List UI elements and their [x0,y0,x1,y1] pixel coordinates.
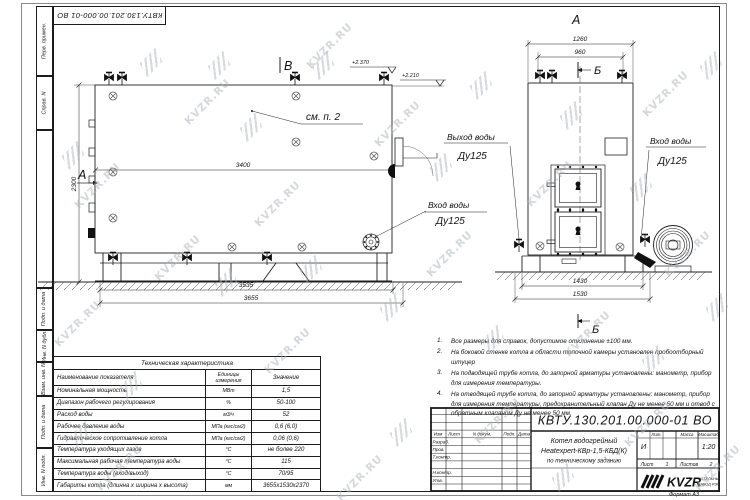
inlet-dn-label: Ду125 [435,216,465,227]
boiler-body-side [95,85,392,253]
valve-icon [105,73,114,86]
lower-door [547,209,601,255]
spec-cell: 0,6 (6,0) [252,421,321,433]
kvzr-logo-text: KVZR [667,476,701,490]
title-block: КВТУ.130.201.00.000-01 ВО Изм Лист N док… [430,407,720,492]
outlet-label: Выход воды [447,132,496,142]
spec-row: Максимальная рабочая температура воды °С… [54,456,321,468]
product-name-line2: Heatexpert-КВр-1,5-КБД(К) [541,448,627,455]
spec-cell: % [206,397,252,409]
col-izm: Изм [434,432,443,437]
col-list: Лист [447,432,460,437]
lit-value: И [641,442,647,451]
inlet-label: Вход воды [428,200,470,210]
spec-cell: 52 [252,409,321,421]
format-label: Формат А3 [648,492,720,498]
row-razrab: Разраб. [433,439,450,444]
sheets-value: 2 [709,462,713,468]
spec-cell: 0,06 (0,6) [252,433,321,445]
dim-2300: 2300 [71,176,78,192]
inlet-dn-label-front: Ду125 [657,156,687,167]
spec-cell: Гидравлическое сопротивление котла [54,433,206,445]
spec-cell: Рабочее давление воды [54,421,206,433]
spec-cell: 1,5 [252,386,321,398]
spec-row: Диапазон рабочего регулирования % 50-100 [54,397,321,409]
spec-cell: МВт [206,386,252,398]
spec-row: Температура уходящих газов °С не более 2… [54,444,321,456]
spec-cell: Диапазон рабочего регулирования [54,397,206,409]
product-name-line1: Котел водогрейный [551,437,618,445]
spec-cell: 3655х1530х2370 [252,480,321,492]
note-item: 2. На боковой стенке котла в области топ… [437,348,720,367]
lug-icon [298,243,306,251]
valve-icon [291,73,300,86]
col-ndocum: N докум. [473,432,492,437]
dim-1260: 1260 [573,36,588,43]
lug-icon [109,92,117,100]
spec-header-units: Единицы измерения [206,370,252,386]
elevation-2370: +2.370 [352,60,370,66]
spec-cell: Расход воды [54,409,206,421]
valve-icon [618,71,627,84]
dim-960: 960 [575,49,586,56]
note-item: 3. На подводящей трубе котла, до запорно… [437,369,720,388]
section-marker-b-bottom: Б [592,324,599,336]
lug-icon [616,243,624,251]
spec-cell: 70/95 [252,468,321,480]
dim-1530: 1530 [573,291,588,298]
spec-cell: 115 [252,456,321,468]
elevation-2210: +2.210 [402,73,420,79]
spec-cell: Температура воды (вход/выход) [54,468,206,480]
spec-cell: Номинальная мощность [54,386,206,398]
lug-icon [292,138,300,146]
lug-icon [228,243,236,251]
lug-icon [109,168,117,176]
section-marker-a: А [77,168,86,182]
section-marker-b-top: Б [594,65,601,77]
spec-row: Гидравлическое сопротивление котла МПа (… [54,433,321,445]
spec-cell: МПа (кгс/см2) [206,421,252,433]
spec-cell: не более 220 [252,444,321,456]
lug-icon [109,214,117,222]
note-item: 1. Все размеры для справок, допустимое о… [437,337,720,346]
product-name-line3: по техническому заданию [547,459,622,465]
sheet-value: 1 [666,462,669,468]
col-data: Дата [517,432,531,437]
spec-cell: мм [206,480,252,492]
sheet-label: Лист [640,462,654,468]
spec-cell: 50-100 [252,397,321,409]
valve-icon [515,240,524,253]
lug-icon [536,242,544,250]
spec-cell: °С [206,456,252,468]
view-title-a: А [571,13,580,27]
section-marker-v: В [284,59,292,73]
spec-row: Габариты котла (длинна х ширина х высота… [54,480,321,492]
outlet-dn-label: Ду125 [457,151,487,162]
valve-icon [118,73,127,86]
spec-cell: МПа (кгс/см2) [206,433,252,445]
inlet-label-front: Вход воды [650,136,692,146]
valve-icon [548,71,557,84]
inlet-flange [363,234,379,250]
row-tkontr: Т.контр. [433,455,452,460]
spec-cell: Температура уходящих газов [54,444,206,456]
spec-title-row: Техническая характеристика [54,357,321,370]
scale-value: 1:20 [702,444,716,451]
front-view-labels: А 1260 960 Б Выход воды Ду125 Вход воды … [447,13,692,336]
spec-row: Расход воды м3/ч 52 [54,409,321,421]
spec-row: Рабочее давление воды МПа (кгс/см2) 0,6 … [54,421,321,433]
dim-3400: 3400 [236,162,251,169]
lug-icon [370,152,378,160]
spec-table-title: Техническая характеристика [54,357,321,370]
spec-header-value: Значение [252,370,321,386]
dim-3535: 3535 [239,282,254,289]
upper-door [547,166,601,211]
dim-1430: 1430 [573,278,588,285]
spec-header-name: Наименование показателя [54,370,206,386]
row-prov: Пров. [433,447,445,452]
side-view [38,57,487,307]
valve-icon [641,235,650,248]
spec-header-row: Наименование показателя Единицы измерени… [54,370,321,386]
logo-sub-line1: КОТЕЛЬНЫЙ [698,477,720,481]
logo-sub-line2: ЗАВОД РЭП [698,483,720,487]
row-utv: Утв. [433,478,443,483]
spec-cell: Максимальная рабочая температура воды [54,456,206,468]
valve-icon [536,71,545,84]
lug-icon [292,92,300,100]
col-podp: Подп. [503,432,515,437]
spec-cell: Габариты котла (длинна х ширина х высота… [54,480,206,492]
sheets-label: Листов [679,462,699,468]
mass-header: Масса [681,432,695,437]
valve-icon [380,73,389,86]
row-nkontr: Н.контр. [433,470,452,475]
drawing-sheet: КВТУ.130.201.00.000-01 ВО Перв. примен. … [0,0,750,500]
spec-row: Номинальная мощность МВт 1,5 [54,386,321,398]
blower-fan [654,226,693,273]
title-block-doc-number: КВТУ.130.201.00.000-01 ВО [538,414,712,428]
spec-cell: °С [206,444,252,456]
spec-table: Техническая характеристика Наименование … [53,356,321,492]
lit-header: Лит. [650,432,661,437]
spec-cell: м3/ч [206,409,252,421]
dim-3655: 3655 [244,295,259,302]
spec-cell: °С [206,468,252,480]
side-view-labels: В см. п. 2 3400 А 2300 +2.370 +2.210 Вхо… [71,59,470,302]
callout-see-note-2: см. п. 2 [306,112,340,123]
scale-header: Масштаб [698,432,719,437]
spec-row: Температура воды (вход/выход) °С 70/95 [54,468,321,480]
